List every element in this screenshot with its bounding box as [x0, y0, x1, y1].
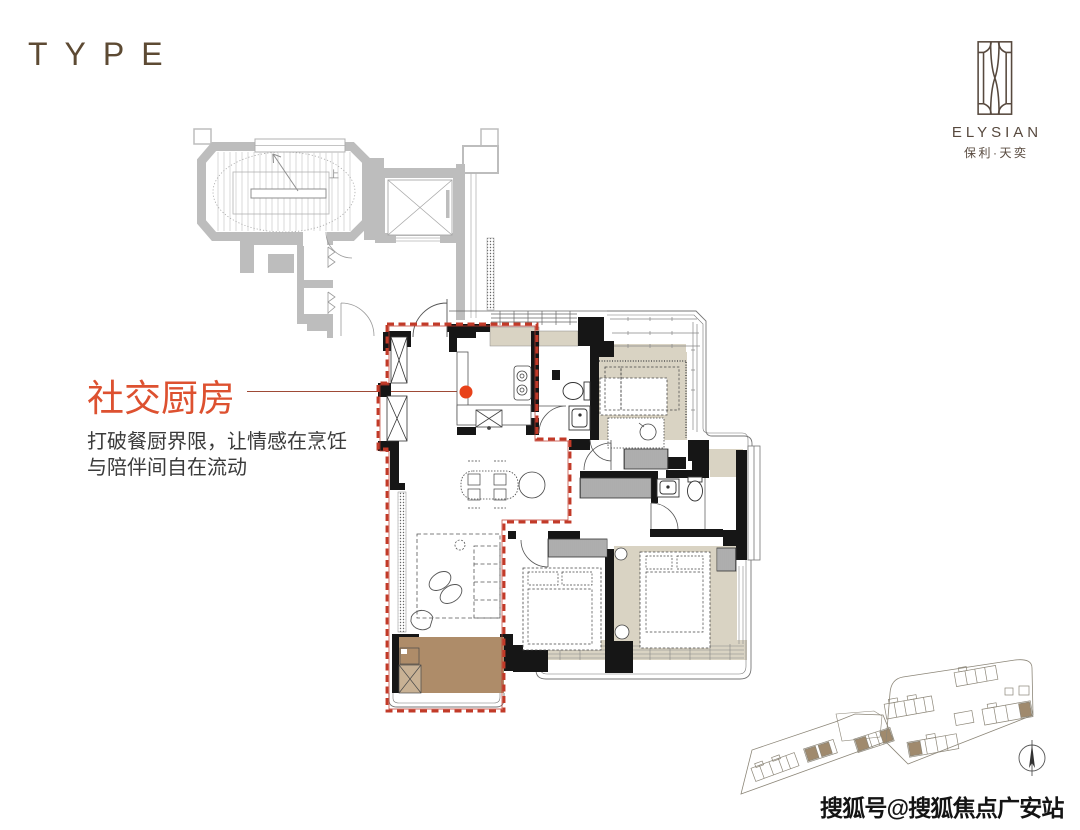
svg-text:搜狐号@搜狐焦点广安站: 搜狐号@搜狐焦点广安站	[820, 795, 1064, 821]
svg-text:上: 上	[329, 169, 339, 181]
